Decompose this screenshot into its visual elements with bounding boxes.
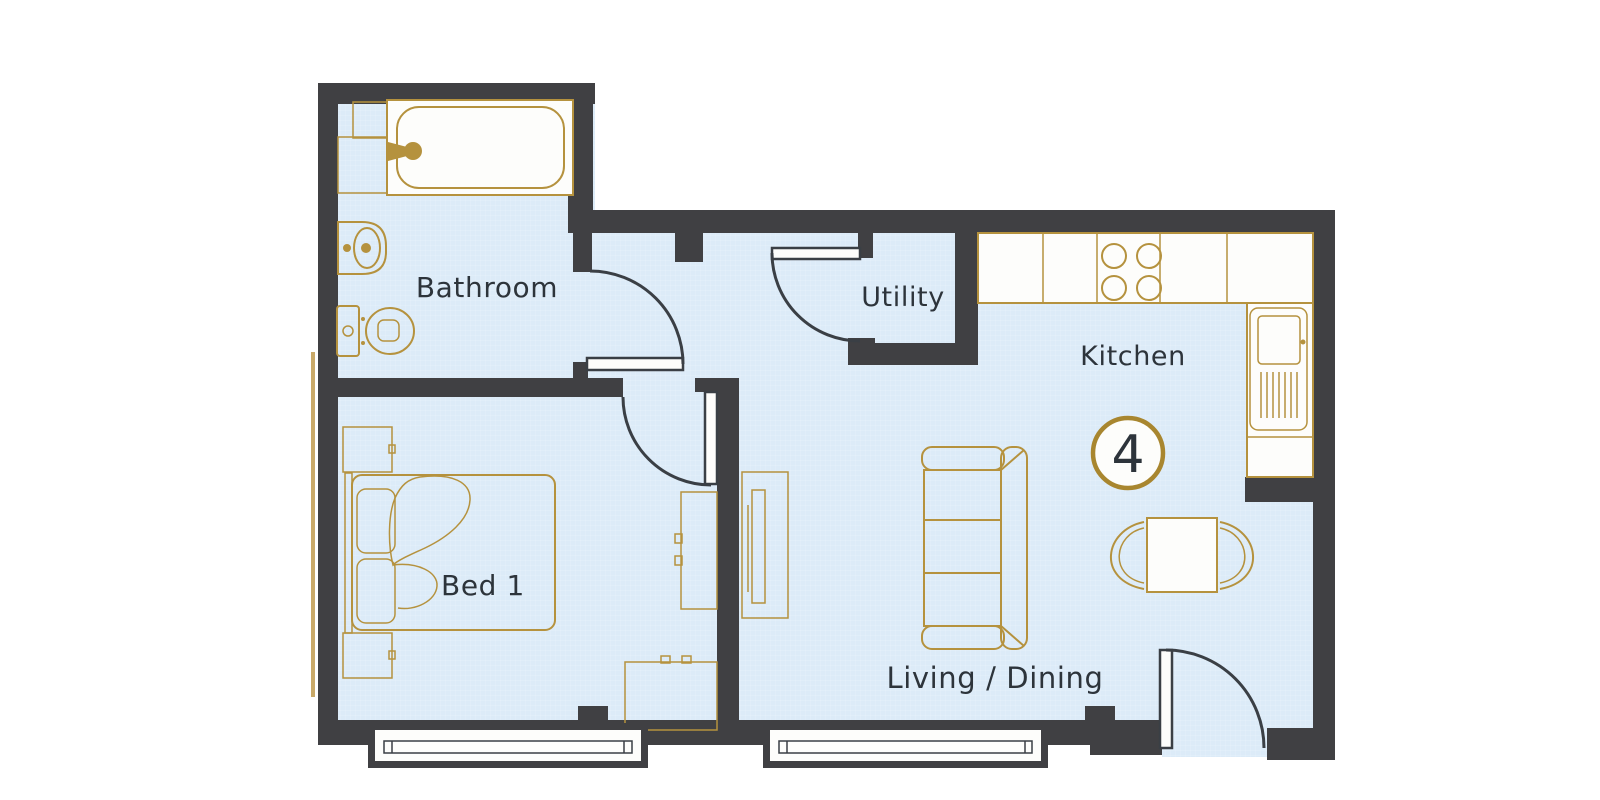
floor-plan-drawing: Bathroom Utility Kitchen Bed 1 Living / … bbox=[0, 0, 1600, 800]
wall-segment bbox=[318, 378, 623, 397]
wall-segment bbox=[675, 233, 703, 262]
door-leaf bbox=[587, 358, 683, 370]
exterior-pipe-line bbox=[311, 352, 315, 697]
bathroom-label: Bathroom bbox=[416, 271, 558, 304]
tub-tap bbox=[404, 142, 422, 160]
sink-tap-dot bbox=[1301, 340, 1306, 345]
wall-segment bbox=[573, 230, 592, 272]
wall-segment bbox=[1085, 706, 1115, 720]
sink-drain bbox=[361, 243, 371, 253]
wall-segment bbox=[1313, 210, 1335, 760]
toilet-hinge bbox=[361, 341, 365, 345]
wall-segment bbox=[1267, 728, 1335, 760]
unit-number: 4 bbox=[1111, 425, 1144, 485]
bed1-label: Bed 1 bbox=[441, 569, 525, 602]
kitchen-counter-column bbox=[1247, 303, 1313, 477]
wall-segment bbox=[695, 378, 717, 392]
door-leaf bbox=[1160, 650, 1172, 748]
unit-number-badge: 4 bbox=[1093, 418, 1163, 488]
dining-table bbox=[1147, 518, 1217, 592]
window-glazing bbox=[779, 741, 1032, 753]
utility-label: Utility bbox=[861, 282, 945, 313]
wall-segment bbox=[717, 378, 739, 745]
toilet-hinge bbox=[361, 317, 365, 321]
door-leaf bbox=[772, 248, 860, 259]
living-window bbox=[763, 723, 1048, 768]
bedroom-window bbox=[368, 723, 648, 768]
floor-entry-recess bbox=[1162, 745, 1267, 757]
floor-plan: Bathroom Utility Kitchen Bed 1 Living / … bbox=[0, 0, 1600, 800]
living-dining-label: Living / Dining bbox=[886, 661, 1103, 695]
wall-segment bbox=[318, 83, 338, 745]
wall-segment bbox=[1090, 745, 1162, 755]
wall-segment bbox=[1245, 477, 1313, 502]
door-leaf bbox=[705, 392, 717, 484]
window-glazing bbox=[384, 741, 632, 753]
wall-segment bbox=[568, 210, 1335, 233]
sink-tap bbox=[343, 244, 351, 252]
draining-board bbox=[1261, 372, 1297, 418]
wall-segment bbox=[578, 706, 608, 720]
kitchen-label: Kitchen bbox=[1080, 341, 1186, 372]
